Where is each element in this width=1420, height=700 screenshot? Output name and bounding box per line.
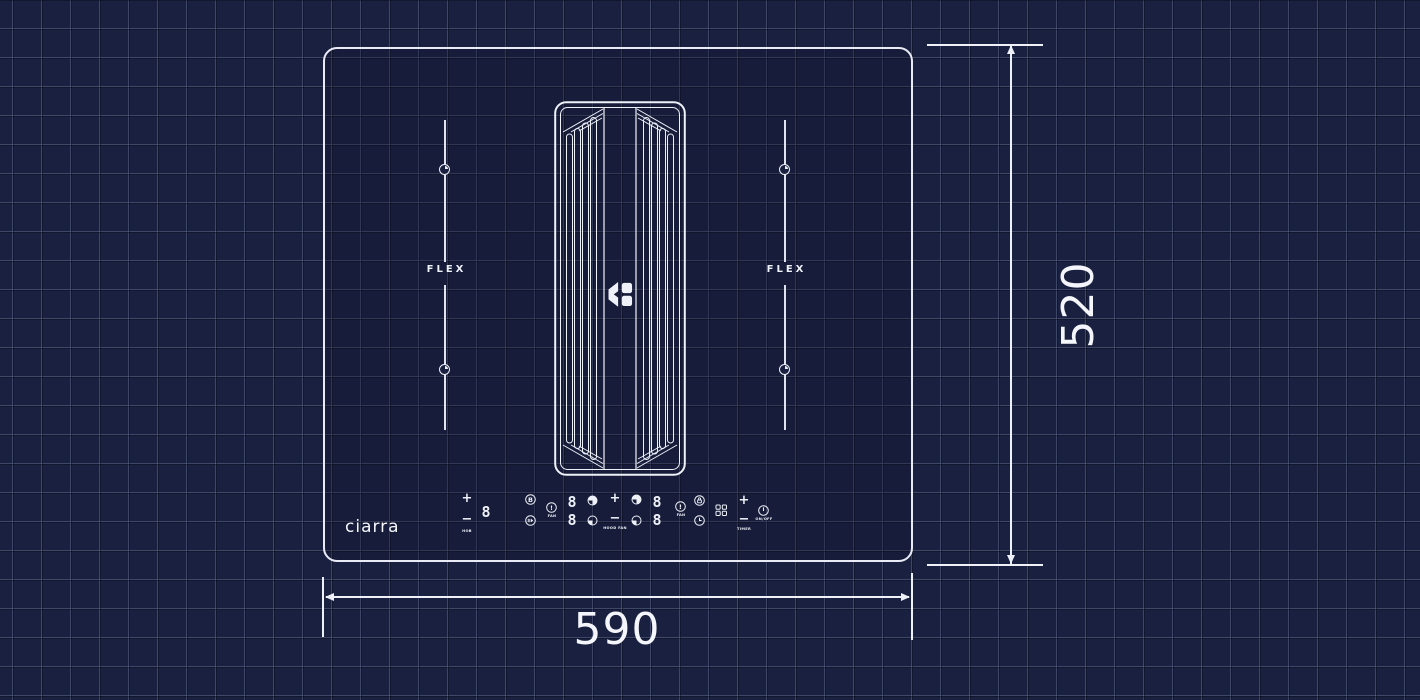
heat-indicator-icon: [631, 515, 642, 526]
flex-right-marker-top-icon: [779, 164, 790, 175]
timer-label: TIMER: [732, 527, 756, 531]
hood-minus-button: −: [607, 513, 623, 525]
height-dim-line: [1010, 46, 1012, 564]
boost-icon: B: [525, 494, 536, 505]
indicator-right-label: FAN: [669, 513, 693, 517]
flex-right-label: FLEX: [750, 264, 820, 275]
height-ext-line-top: [927, 44, 1043, 46]
flex-left-line-top: [444, 120, 445, 262]
pause-icon: [525, 515, 536, 526]
heat-indicator-icon: [631, 494, 642, 505]
flex-left-marker-top-icon: [439, 164, 450, 175]
arrow-right-icon: [901, 593, 910, 601]
zone-left-minus-button: −: [459, 514, 475, 526]
power-icon: [758, 505, 769, 516]
timer-minus-button: −: [736, 514, 752, 526]
brand-wordmark: ciarra: [345, 517, 400, 537]
height-dimension-value: 520: [1026, 257, 1130, 353]
width-dim-line: [326, 596, 909, 598]
zone-left-label: HOB: [455, 529, 479, 533]
svg-text:!: !: [550, 504, 553, 512]
indicator-left-icon: !: [546, 502, 557, 513]
flex-left-line-bottom: [444, 285, 445, 430]
four-zone-icon: [715, 504, 728, 517]
width-ext-line-left: [322, 577, 324, 637]
indicator-right-icon: !: [675, 501, 686, 512]
hob-drawing: FLEX FLEX ciarra + − HOB 8: [323, 47, 913, 562]
display-right-top: 8: [651, 494, 663, 510]
power-label: ON/OFF: [752, 517, 776, 521]
height-ext-line-bottom: [927, 564, 1043, 566]
hood-label: HOOD FAN: [603, 526, 627, 530]
timer-plus-button: +: [736, 495, 752, 507]
flex-right-line-top: [784, 120, 785, 262]
indicator-left-label: FAN: [540, 514, 564, 518]
arrow-down-icon: [1007, 555, 1015, 564]
hood-plus-button: +: [607, 493, 623, 505]
svg-text:!: !: [679, 503, 682, 511]
heat-indicator-icon: [587, 515, 598, 526]
flex-right-marker-bottom-icon: [779, 364, 790, 375]
lock-icon: [694, 495, 705, 506]
blueprint-canvas: { "colors": {"background":"#1a2140","gri…: [0, 0, 1420, 700]
display-left-bottom: 8: [566, 512, 578, 528]
zone-left-plus-button: +: [459, 493, 475, 505]
flex-left-marker-bottom-icon: [439, 364, 450, 375]
width-dimension-value: 590: [537, 604, 697, 655]
zone-left-display: 8: [480, 504, 492, 520]
svg-text:B: B: [528, 496, 533, 504]
flex-right-line-bottom: [784, 285, 785, 430]
arrow-left-icon: [325, 593, 334, 601]
heat-indicator-icon: [587, 495, 598, 506]
clock-icon: [694, 515, 705, 526]
width-ext-line-right: [911, 573, 913, 640]
downdraft-vent: [554, 101, 686, 476]
ciarra-logo-mark-icon: [609, 282, 633, 307]
arrow-up-icon: [1007, 45, 1015, 54]
display-right-bottom: 8: [651, 512, 663, 528]
flex-left-label: FLEX: [410, 264, 480, 275]
display-left-top: 8: [566, 494, 578, 510]
